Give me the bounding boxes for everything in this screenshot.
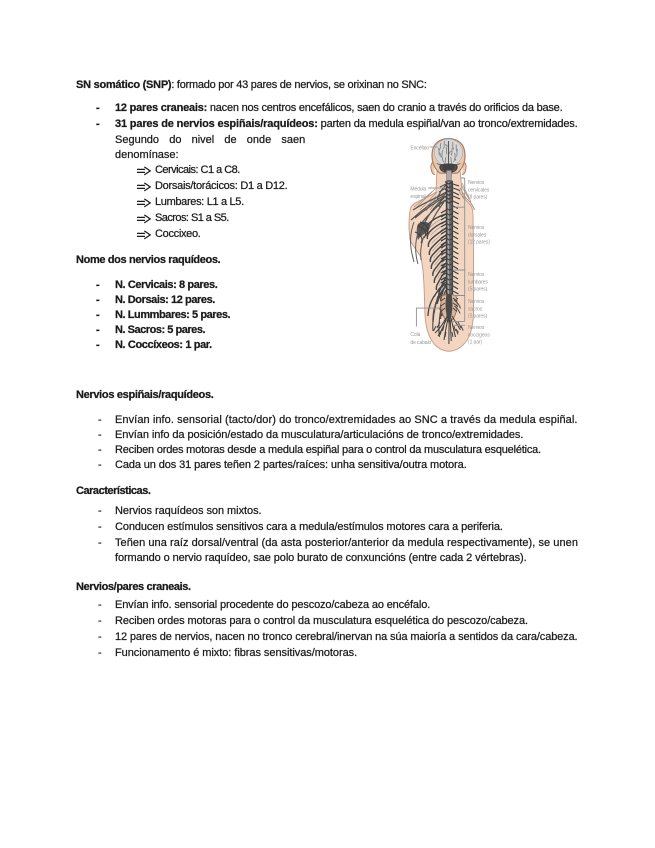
- svg-text:Nervios: Nervios: [468, 225, 485, 231]
- svg-text:dorsales: dorsales: [468, 232, 487, 238]
- svg-text:Nervios: Nervios: [468, 325, 485, 331]
- svg-text:Nervios: Nervios: [468, 180, 485, 186]
- svg-text:(8 pares): (8 pares): [468, 195, 488, 201]
- svg-text:(12 pares): (12 pares): [468, 240, 490, 246]
- svg-text:Nervios: Nervios: [468, 299, 485, 305]
- svg-text:(5 pares): (5 pares): [468, 314, 488, 320]
- svg-text:lumbares: lumbares: [468, 279, 488, 285]
- svg-text:Nervios: Nervios: [468, 272, 485, 278]
- svg-text:espinal: espinal: [410, 194, 425, 200]
- svg-text:Médula: Médula: [410, 187, 426, 193]
- svg-text:Cola: Cola: [410, 332, 420, 338]
- svg-text:Encéfalo: Encéfalo: [410, 146, 429, 152]
- svg-text:sacros: sacros: [468, 306, 483, 312]
- svg-text:(1 par): (1 par): [468, 340, 482, 346]
- svg-text:cervicales: cervicales: [468, 187, 490, 193]
- svg-text:de cabalo: de cabalo: [410, 340, 431, 346]
- svg-text:coccígeos: coccígeos: [468, 332, 490, 338]
- svg-text:(5 pares): (5 pares): [468, 287, 488, 293]
